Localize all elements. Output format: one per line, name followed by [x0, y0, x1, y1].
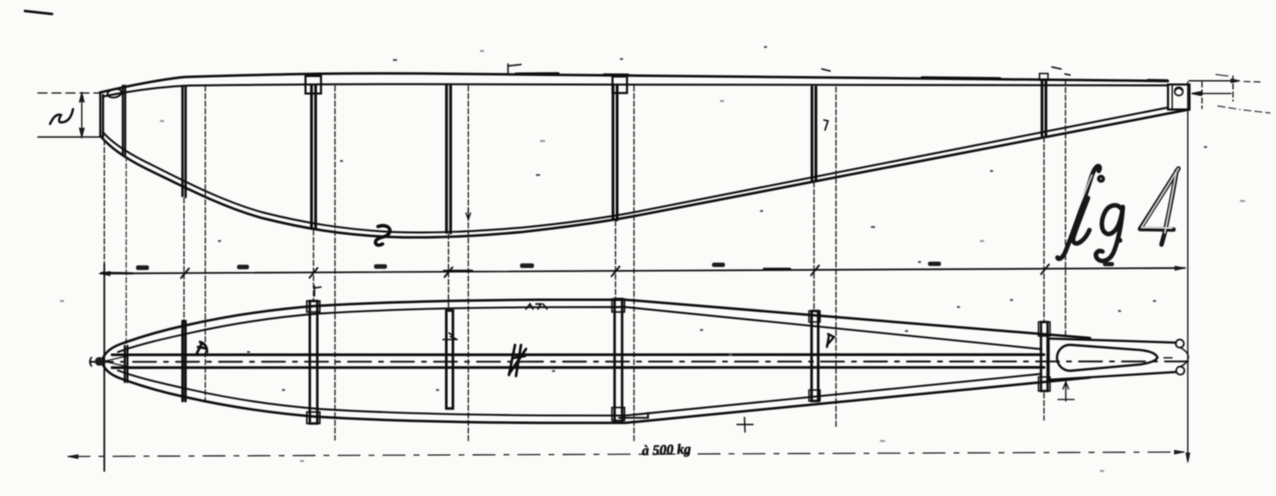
svg-text:à 500 kg: à 500 kg [642, 442, 691, 459]
